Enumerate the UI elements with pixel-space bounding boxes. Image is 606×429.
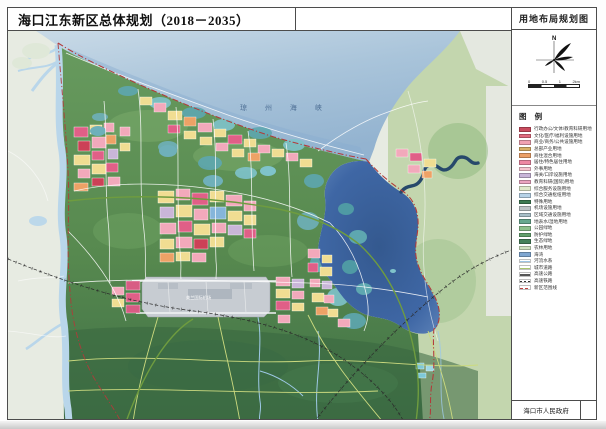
airport-label: 美兰国际机场 xyxy=(186,294,211,301)
legend-label: 综合服务设施用地 xyxy=(534,186,571,192)
legend-item: 区域交通设施用地 xyxy=(519,212,596,219)
legend-swatch xyxy=(519,160,531,165)
legend-label: 特殊用地 xyxy=(534,199,552,205)
legend-swatch xyxy=(519,134,531,139)
legend-swatch xyxy=(519,200,531,205)
scale-label: 0 xyxy=(528,79,530,84)
legend-rows: 行政办公/文体/教育科研用地 文化/医疗/福利设施用地 商业/商务/公共设施用地… xyxy=(519,126,596,291)
legend-item: 总部产业用地 xyxy=(519,146,596,153)
legend-swatch xyxy=(519,213,531,218)
legend-label: 文化/医疗/福利设施用地 xyxy=(534,133,583,139)
legend-item: 农林用地 xyxy=(519,245,596,252)
sea-label: 琼 州 海 峡 xyxy=(240,103,330,112)
legend-label: 新区范围线 xyxy=(534,285,557,291)
legend-label: 海关/口岸设施用地 xyxy=(534,172,572,178)
legend: 图 例 行政办公/文体/教育科研用地 文化/医疗/福利设施用地 商业/商务/公共… xyxy=(512,106,596,291)
legend-swatch xyxy=(519,279,531,284)
publisher-stamp-cell xyxy=(580,401,596,419)
legend-label: 公园绿地 xyxy=(534,225,552,231)
legend-label: 行政办公/文体/教育科研用地 xyxy=(534,126,592,132)
legend-label: 总部产业用地 xyxy=(534,146,562,152)
legend-item: 教育科研(国际)用地 xyxy=(519,179,596,186)
legend-label: 生态绿地 xyxy=(534,238,552,244)
legend-header: 图 例 xyxy=(519,111,596,122)
map-sheet-name: 用地布局规划图 xyxy=(519,12,589,25)
publisher-bar: 海口市人民政府 xyxy=(512,400,596,419)
legend-item: 海关/口岸设施用地 xyxy=(519,172,596,179)
publisher-name: 海口市人民政府 xyxy=(512,401,580,419)
legend-swatch xyxy=(519,153,531,158)
legend-item: 商业/商务/公共设施用地 xyxy=(519,139,596,146)
legend-label: 高速公路 xyxy=(534,271,552,277)
legend-swatch xyxy=(519,246,531,251)
legend-label: 综合交通枢纽用地 xyxy=(534,192,571,198)
legend-item: 高速铁路 xyxy=(519,278,596,285)
legend-label: 区域交通设施用地 xyxy=(534,212,571,218)
legend-item: 机场设施用地 xyxy=(519,205,596,212)
legend-item: 公园绿地 xyxy=(519,225,596,232)
page-title: 海口江东新区总体规划（2018－2035） xyxy=(18,10,250,29)
legend-label: 河流水系 xyxy=(534,258,552,264)
side-panel: 用地布局规划图 N 0 0.5 1 xyxy=(511,8,596,419)
legend-item: 综合交通枢纽用地 xyxy=(519,192,596,199)
legend-item: 河流水系 xyxy=(519,258,596,265)
legend-swatch xyxy=(519,206,531,211)
legend-item: 防护绿地 xyxy=(519,232,596,239)
scale-label: 0.5 xyxy=(542,79,548,84)
legend-swatch xyxy=(519,167,531,172)
legend-item: 高速公路 xyxy=(519,271,596,278)
legend-label: 地表水/湿地用地 xyxy=(534,219,567,225)
legend-item: 地表水/湿地用地 xyxy=(519,218,596,225)
legend-swatch xyxy=(519,239,531,244)
legend-label: 教育科研(国际)用地 xyxy=(534,179,574,185)
legend-item: 行政办公/文体/教育科研用地 xyxy=(519,126,596,133)
scale-label: 1 xyxy=(559,79,561,84)
panel-header: 用地布局规划图 xyxy=(512,8,596,30)
legend-swatch xyxy=(519,173,531,178)
plan-sheet-frame: 海口江东新区总体规划（2018－2035） xyxy=(7,7,597,420)
legend-item: 商住混合用地 xyxy=(519,152,596,159)
legend-label: 机场设施用地 xyxy=(534,205,562,211)
legend-swatch xyxy=(519,252,531,257)
legend-label: 居住/特色居住用地 xyxy=(534,159,572,165)
legend-label: 城市道路 xyxy=(534,265,552,271)
legend-swatch xyxy=(519,265,531,270)
legend-label: 外事用地 xyxy=(534,166,552,172)
legend-swatch xyxy=(519,140,531,145)
legend-item: 海湾 xyxy=(519,251,596,258)
legend-swatch xyxy=(519,219,531,224)
legend-label: 防护绿地 xyxy=(534,232,552,238)
legend-swatch xyxy=(519,272,531,277)
legend-swatch xyxy=(519,186,531,191)
legend-item: 城市道路 xyxy=(519,264,596,271)
legend-swatch xyxy=(519,193,531,198)
legend-label: 商业/商务/公共设施用地 xyxy=(534,139,583,145)
compass-section: N 0 0.5 1 2km xyxy=(512,30,596,106)
legend-swatch xyxy=(519,233,531,238)
legend-item: 居住/特色居住用地 xyxy=(519,159,596,166)
legend-swatch xyxy=(519,259,531,264)
legend-swatch xyxy=(519,147,531,152)
legend-swatch xyxy=(519,127,531,132)
legend-label: 商住混合用地 xyxy=(534,153,562,159)
legend-label: 高速铁路 xyxy=(534,278,552,284)
legend-item: 新区范围线 xyxy=(519,284,596,291)
scale-label: 2km xyxy=(572,79,580,84)
title-cell: 海口江东新区总体规划（2018－2035） xyxy=(8,8,296,30)
map-area[interactable]: 美兰国际机场 xyxy=(8,31,511,419)
legend-item: 综合服务设施用地 xyxy=(519,185,596,192)
scale-bar-graphic xyxy=(528,84,580,88)
legend-label: 农林用地 xyxy=(534,245,552,251)
legend-swatch xyxy=(519,226,531,231)
legend-label: 海湾 xyxy=(534,252,543,258)
page: 海口江东新区总体规划（2018－2035） xyxy=(0,0,606,429)
title-bar: 海口江东新区总体规划（2018－2035） xyxy=(8,8,596,31)
legend-swatch xyxy=(519,285,531,290)
scale-bar: 0 0.5 1 2km xyxy=(528,79,580,88)
north-arrow-icon: N xyxy=(528,33,580,77)
map-canvas[interactable]: 美兰国际机场 xyxy=(8,31,511,419)
legend-item: 生态绿地 xyxy=(519,238,596,245)
legend-swatch xyxy=(519,180,531,185)
photo-edge xyxy=(0,421,606,429)
